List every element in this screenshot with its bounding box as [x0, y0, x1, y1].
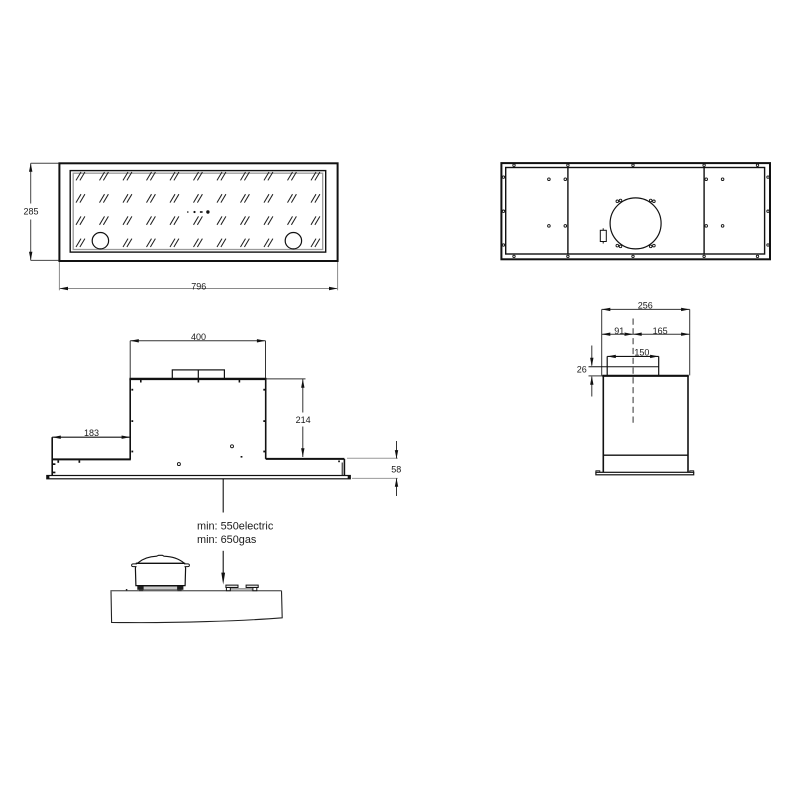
svg-text:256: 256	[638, 300, 653, 310]
svg-text:796: 796	[191, 281, 206, 291]
svg-text:165: 165	[653, 326, 668, 336]
svg-text:214: 214	[296, 415, 311, 425]
svg-text:min: 550electric: min: 550electric	[197, 521, 274, 533]
svg-text:285: 285	[23, 207, 38, 217]
svg-text:26: 26	[577, 364, 587, 374]
svg-text:min: 650gas: min: 650gas	[197, 534, 257, 546]
svg-text:91: 91	[614, 326, 624, 336]
svg-text:400: 400	[191, 332, 206, 342]
svg-text:150: 150	[634, 348, 649, 358]
svg-text:183: 183	[84, 428, 99, 438]
svg-text:58: 58	[391, 465, 401, 475]
